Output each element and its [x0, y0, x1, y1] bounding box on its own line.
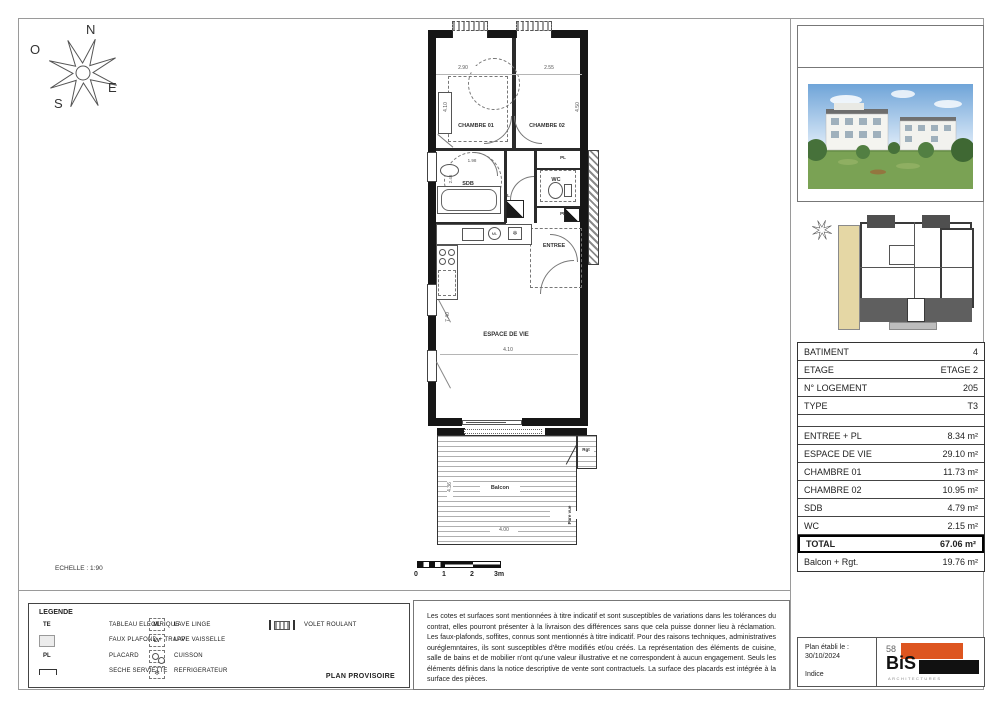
table-row: N° LOGEMENT205 — [798, 379, 984, 397]
row-label: SDB — [804, 503, 823, 513]
site-unit-highlight — [838, 225, 860, 330]
compass-rose: N O E S — [28, 20, 138, 125]
row-value: 19.76 m² — [942, 557, 978, 567]
plan-date: 30/10/2024 — [805, 652, 840, 661]
site-balcony-top-2 — [922, 215, 950, 228]
photo-box — [797, 25, 984, 202]
row-value: 67.06 m² — [940, 539, 976, 549]
lave-linge-label: ML — [492, 231, 498, 236]
table-row: Balcon + Rgt.19.76 m² — [798, 553, 984, 571]
dim-ch2-height: 4.50 — [575, 97, 581, 117]
row-label: TOTAL — [806, 539, 835, 549]
cooktop-burner-1 — [439, 249, 446, 256]
logo-58bis: 58 BiS ARCHITECTURES — [886, 643, 980, 683]
logo-black-rect — [919, 660, 979, 674]
row-value: 11.73 m² — [943, 467, 978, 477]
scale-tick-3m: 3m — [494, 571, 504, 578]
legend-label-tableau-electrique: TABLEAU ELECTRIQUE — [109, 622, 180, 628]
table-row: ETAGEETAGE 2 — [798, 361, 984, 379]
kitchen-appliance-dashed — [438, 270, 456, 296]
building-photo-illustration — [808, 84, 973, 189]
table-row: SDB4.79 m² — [798, 499, 984, 517]
volet-roulant-top-1 — [452, 21, 488, 31]
cooktop-burner-3 — [439, 258, 446, 265]
legal-notes-text: Les cotes et surfaces sont mentionnées à… — [414, 601, 789, 697]
scale-bar — [417, 561, 501, 568]
wall-wc-left — [534, 151, 537, 223]
row-value: 29.10 m² — [942, 449, 978, 459]
table-row: CHAMBRE 0210.95 m² — [798, 481, 984, 499]
site-balcony-bottom-gap — [907, 298, 925, 322]
table-row-total: TOTAL67.06 m² — [798, 535, 984, 553]
legend-symbol-lave-linge: ML — [149, 618, 165, 631]
site-compass-icon — [809, 217, 835, 243]
compass-south-label: S — [54, 96, 63, 111]
legend-symbol-refrigerateur: ❄ — [149, 666, 165, 679]
balcony-wall-chunk-right — [545, 428, 587, 435]
notes-box: Les cotes et surfaces sont mentionnées à… — [413, 600, 790, 690]
dim-vie-height: 7.40 — [445, 307, 451, 327]
row-value: 205 — [963, 383, 978, 393]
bathtub-inner — [441, 189, 497, 211]
divider-horizontal — [18, 590, 790, 591]
legend-symbol-cuisson — [149, 650, 165, 663]
wc-toilet-tank — [564, 184, 572, 197]
table-row: ESPACE DE VIE29.10 m² — [798, 445, 984, 463]
cuisson-burner-dot-2 — [158, 657, 165, 664]
window-left-living-2 — [427, 350, 437, 382]
compass-star-icon — [38, 28, 128, 118]
table-row: TYPET3 — [798, 397, 984, 415]
wall-party-hatch — [588, 150, 599, 265]
site-wall-h — [860, 267, 972, 268]
dim-sdb-width: 1.98 — [460, 159, 484, 164]
dim-vie-width: 4.10 — [494, 348, 522, 353]
row-label: TYPE — [804, 401, 828, 411]
photo-box-divider — [798, 67, 983, 68]
legend-symbol-faux-plafond — [39, 635, 55, 647]
logo-subtext: ARCHITECTURES — [888, 676, 942, 681]
row-value: ETAGE 2 — [941, 365, 978, 375]
row-value: 4.79 m² — [947, 503, 978, 513]
compass-north-label: N — [86, 22, 95, 37]
scale-bar-segment-1 — [418, 562, 445, 567]
row-value: T3 — [967, 401, 978, 411]
table-row: CHAMBRE 0111.73 m² — [798, 463, 984, 481]
compass-west-label: O — [30, 42, 40, 57]
site-balcony-top-1 — [867, 215, 895, 228]
room-label-balcon: Balcon — [480, 486, 520, 492]
row-value: 2.15 m² — [947, 521, 978, 531]
table-row-spacer — [798, 415, 984, 427]
legend-symbol-te: TE — [43, 622, 51, 628]
kitchen-sink — [462, 228, 484, 241]
dim-line-vie — [440, 354, 578, 355]
cooktop-burner-2 — [448, 249, 455, 256]
legend-box: LEGENDE TE TABLEAU ELECTRIQUE FAUX PLAFO… — [28, 603, 410, 688]
pl-label-2: PL — [556, 212, 570, 217]
volet-roulant-top-2 — [516, 21, 552, 31]
scale-bar-segment-3 — [473, 562, 500, 567]
window-left-sdb — [427, 152, 437, 182]
legend-title: LEGENDE — [39, 609, 73, 616]
row-label: CHAMBRE 02 — [804, 485, 862, 495]
row-label: N° LOGEMENT — [804, 383, 867, 393]
wall-bottom-left — [428, 418, 462, 426]
legend-label-lave-vaisselle: LAVE VAISSELLE — [174, 637, 225, 643]
row-value: 8.34 m² — [947, 431, 978, 441]
site-bottom-notch — [889, 322, 937, 330]
legend-symbol-volet-roulant — [269, 620, 295, 630]
scale-bar-segment-2 — [445, 562, 472, 567]
balcony-dotted-strip — [464, 429, 542, 434]
legend-label-cuisson: CUISSON — [174, 653, 203, 659]
title-block-divider — [876, 638, 877, 686]
dim-balcon-height: 4.36 — [447, 477, 453, 497]
dim-top-right: 2.55 — [534, 66, 564, 71]
legend-symbol-pl: PL — [43, 653, 51, 659]
dim-line-top — [436, 74, 582, 75]
wc-toilet-bowl — [548, 182, 563, 199]
wall-bottom-right — [522, 418, 588, 426]
row-label: CHAMBRE 01 — [804, 467, 862, 477]
row-label: ESPACE DE VIE — [804, 449, 872, 459]
site-wing-right — [940, 228, 974, 308]
table-row: WC2.15 m² — [798, 517, 984, 535]
compass-east-label: E — [108, 80, 117, 95]
legend-label-lave-linge: LAVE LINGE — [174, 622, 211, 628]
apartment-info-table: BATIMENT4 ETAGEETAGE 2 N° LOGEMENT205 TY… — [797, 342, 985, 572]
row-label: ENTREE + PL — [804, 431, 862, 441]
indice-label: Indice — [805, 670, 824, 679]
window-top-1 — [452, 30, 488, 38]
row-value: 10.95 m² — [942, 485, 978, 495]
scale-tick-0: 0 — [414, 571, 418, 578]
legend-symbol-seche-serviette — [39, 669, 57, 675]
room-label-espace-de-vie: ESPACE DE VIE — [470, 332, 542, 338]
technical-shaft-1 — [506, 200, 524, 218]
room-label-entree: ENTREE — [534, 244, 574, 250]
logo-text: BiS — [886, 653, 916, 674]
row-value: 4 — [973, 347, 978, 357]
sliding-bay-door-line — [466, 422, 506, 423]
scale-text: ECHELLE : 1:90 — [55, 565, 103, 572]
scale-tick-2: 2 — [470, 571, 474, 578]
table-row: BATIMENT4 — [798, 343, 984, 361]
title-block: Plan établi le : 30/10/2024 Indice 58 Bi… — [797, 637, 985, 687]
dim-ch1-height: 4.10 — [443, 97, 449, 117]
pl-label-3: PL — [500, 194, 514, 199]
dim-top-left: 2.90 — [448, 66, 478, 71]
cooktop-burner-4 — [448, 258, 455, 265]
scale-tick-1: 1 — [442, 571, 446, 578]
row-label: Balcon + Rgt. — [804, 557, 858, 567]
legend-symbol-lave-vaisselle: LV — [149, 634, 165, 647]
dim-balcon-width: 4.00 — [490, 528, 518, 533]
dim-sdb-height: 2.46 — [448, 170, 454, 188]
row-label: BATIMENT — [804, 347, 849, 357]
row-label: WC — [804, 521, 819, 531]
balcony-wall-chunk-left — [437, 428, 465, 435]
legend-label-placard: PLACARD — [109, 653, 139, 659]
plan-provisoire-label: PLAN PROVISOIRE — [326, 673, 395, 680]
wall-right-top — [580, 30, 588, 165]
pl-label-1: PL — [556, 156, 570, 161]
legend-label-refrigerateur: REFRIGERATEUR — [174, 668, 228, 674]
room-label-wc: WC — [548, 178, 564, 184]
refrigerateur-symbol: ❄ — [508, 227, 522, 240]
floor-plan-sheet: N O E S — [0, 0, 1000, 707]
lave-linge-symbol: ML — [488, 227, 501, 240]
legend-label-volet-roulant: VOLET ROULANT — [304, 622, 357, 628]
label-pare-vue: Pare vue — [550, 511, 590, 519]
table-row: ENTREE + PL8.34 m² — [798, 427, 984, 445]
label-rgt: Rgt — [578, 448, 594, 453]
room-label-sdb: SDB — [458, 182, 478, 188]
room-label-chambre01: CHAMBRE 01 — [446, 124, 506, 130]
wall-under-bedrooms — [436, 148, 580, 151]
room-label-chambre02: CHAMBRE 02 — [518, 124, 576, 130]
volet-roulant-hatch — [274, 621, 290, 630]
site-plan — [797, 205, 985, 335]
divider-vertical — [790, 18, 791, 690]
row-label: ETAGE — [804, 365, 834, 375]
window-top-2 — [516, 30, 552, 38]
site-core-box — [889, 245, 915, 265]
